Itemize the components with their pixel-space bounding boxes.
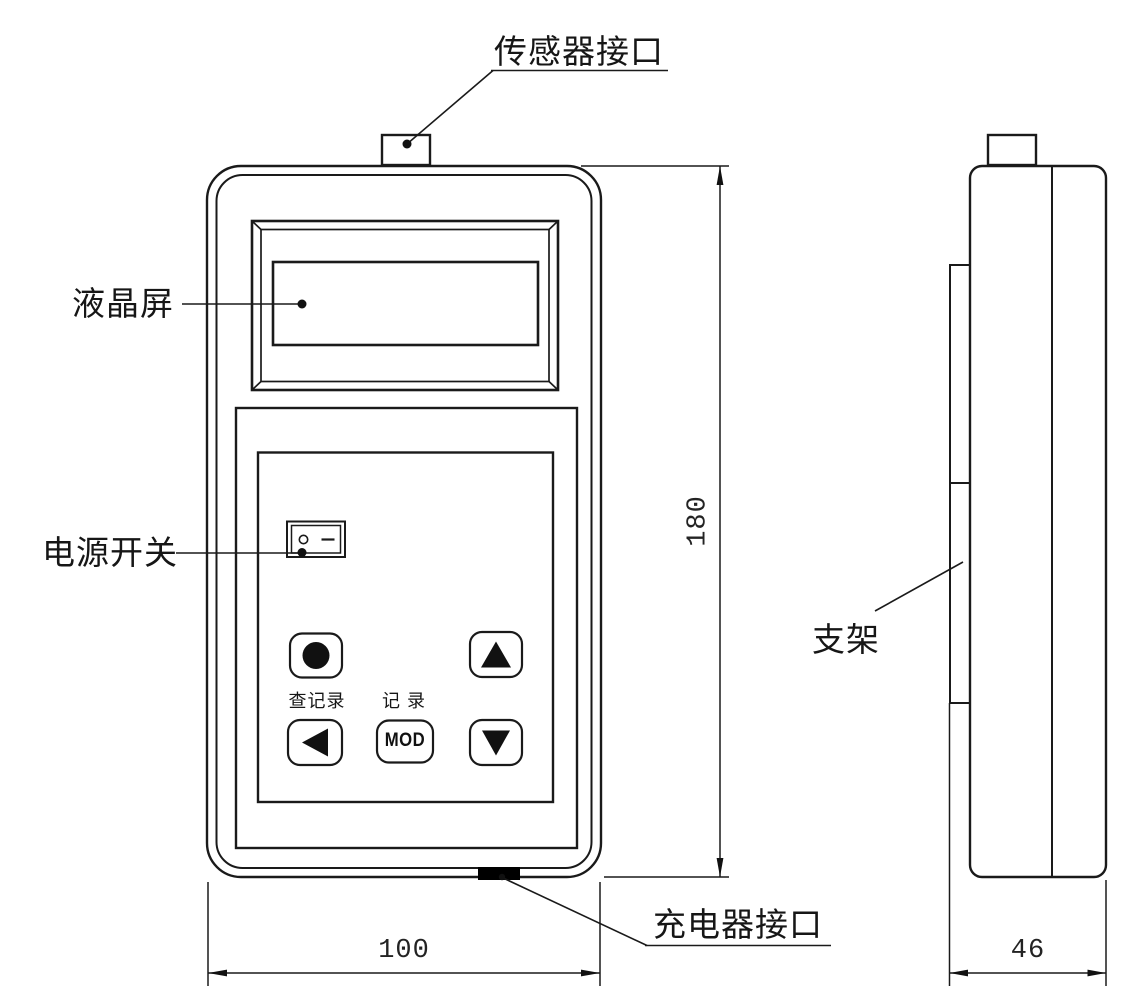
leader-lines <box>176 71 963 946</box>
height-arrow-top <box>717 166 724 185</box>
width-arrow-right <box>581 970 600 977</box>
record-dot-icon <box>303 642 330 669</box>
lcd-screen-label: 液晶屏 <box>72 287 174 320</box>
mod-button: MOD <box>377 720 433 762</box>
power-switch-leader-dot <box>298 548 307 557</box>
sensor-port-leader-dot <box>403 140 412 149</box>
check-record-label: 查记录 <box>289 692 346 710</box>
power-switch-label: 电源开关 <box>42 536 178 569</box>
width-arrow-left <box>208 970 227 977</box>
front-width-dim-value: 100 <box>378 938 430 965</box>
side-body-outline <box>970 166 1106 877</box>
power-switch <box>287 522 345 558</box>
charger-port-label: 充电器接口 <box>653 908 823 941</box>
keypad-panel-outer <box>236 408 577 848</box>
side-view <box>950 135 1106 877</box>
up-arrow-icon <box>481 642 511 668</box>
left-arrow-icon <box>302 729 328 757</box>
height-arrow-bottom <box>717 858 724 877</box>
dimension-lines <box>208 166 1106 986</box>
sensor-connector-side <box>988 135 1036 165</box>
switch-off-icon <box>299 535 307 543</box>
sensor-connector-front <box>382 135 430 165</box>
device-outline-outer <box>207 166 601 877</box>
side-width-dim-value: 46 <box>1011 938 1045 965</box>
side-width-arrow-left <box>950 970 969 977</box>
side-width-arrow-right <box>1088 970 1107 977</box>
power-switch-body <box>287 522 345 558</box>
lcd-display-window <box>273 262 538 345</box>
bracket-label: 支架 <box>812 623 880 656</box>
down-arrow-icon <box>482 731 510 756</box>
record-label: 记 录 <box>382 692 426 710</box>
charger-port-leader <box>502 878 647 946</box>
front-height-dim-value: 180 <box>686 495 713 547</box>
technical-drawing <box>0 0 1131 1004</box>
dimension-drawing-page: 传感器接口 液晶屏 电源开关 查记录 记 录 MOD 充电器接口 支架 100 … <box>0 0 1131 1004</box>
mod-button-label: MOD <box>385 730 425 752</box>
front-view <box>207 135 601 880</box>
lcd-leader-dot <box>298 300 307 309</box>
sensor-port-leader <box>407 71 493 145</box>
charger-port-leader-dot <box>499 874 505 880</box>
sensor-port-label: 传感器接口 <box>494 35 664 68</box>
